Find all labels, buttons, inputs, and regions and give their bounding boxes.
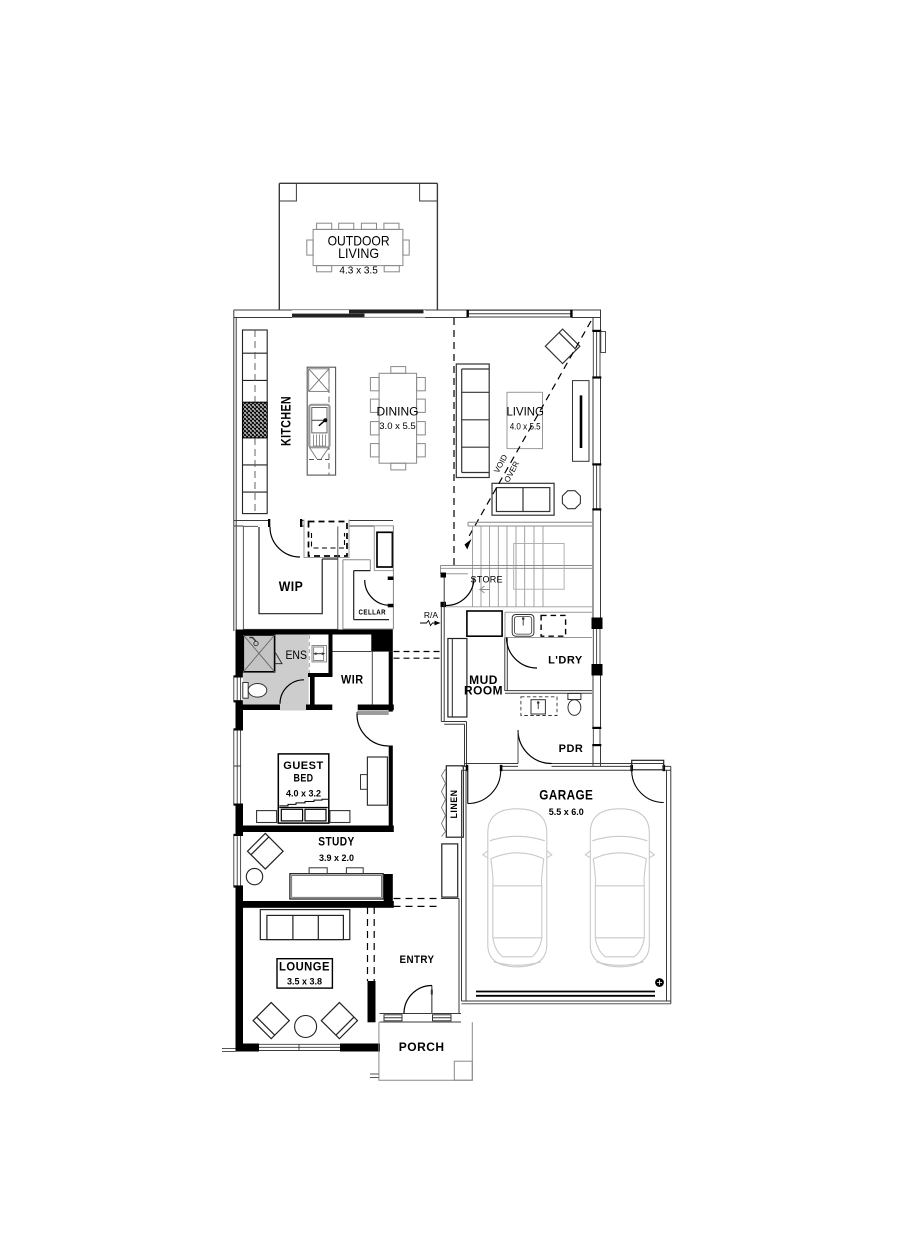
svg-text:4.0 x 3.2: 4.0 x 3.2 <box>286 788 321 798</box>
svg-text:GUEST: GUEST <box>283 760 323 772</box>
svg-text:LIVING: LIVING <box>506 404 544 418</box>
svg-text:5.5 x 6.0: 5.5 x 6.0 <box>549 807 584 817</box>
svg-text:BED: BED <box>294 773 314 785</box>
svg-text:ROOM: ROOM <box>464 683 503 697</box>
svg-text:3.5 x 3.8: 3.5 x 3.8 <box>287 977 322 987</box>
svg-text:DINING: DINING <box>377 405 419 419</box>
svg-text:ENTRY: ENTRY <box>400 954 435 966</box>
svg-text:STORE: STORE <box>471 575 503 585</box>
svg-text:L'DRY: L'DRY <box>548 655 583 667</box>
svg-text:PORCH: PORCH <box>399 1040 445 1054</box>
svg-text:R/A: R/A <box>424 610 439 620</box>
svg-text:CELLAR: CELLAR <box>359 608 387 617</box>
svg-text:KITCHEN: KITCHEN <box>279 396 294 446</box>
svg-text:LOUNGE: LOUNGE <box>279 962 330 974</box>
svg-text:4.0 x 5.5: 4.0 x 5.5 <box>510 422 541 433</box>
svg-text:4.3 x 3.5: 4.3 x 3.5 <box>339 266 378 277</box>
svg-text:ENS: ENS <box>285 650 307 662</box>
svg-text:WIP: WIP <box>279 579 304 594</box>
svg-text:LINEN: LINEN <box>449 790 459 819</box>
svg-text:PDR: PDR <box>559 743 584 755</box>
svg-text:WIR: WIR <box>341 675 364 687</box>
svg-text:STUDY: STUDY <box>318 837 355 849</box>
svg-text:3.0 x 5.5: 3.0 x 5.5 <box>379 421 415 432</box>
svg-text:3.9 x 2.0: 3.9 x 2.0 <box>319 853 354 863</box>
svg-text:LIVING: LIVING <box>338 245 379 261</box>
svg-text:GARAGE: GARAGE <box>539 787 593 803</box>
